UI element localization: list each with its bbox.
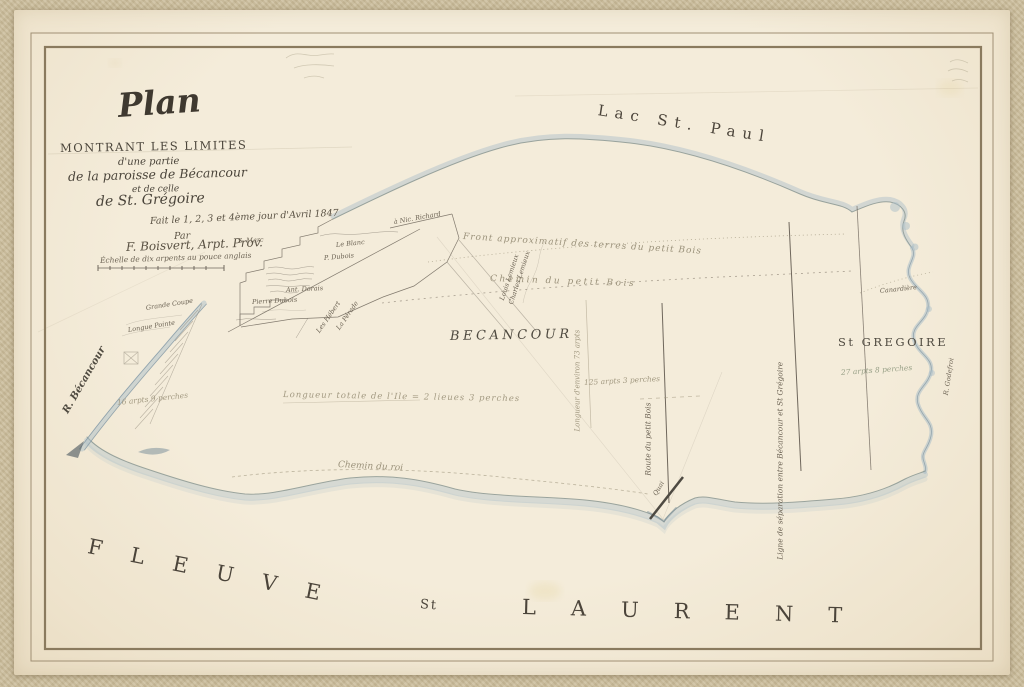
label-lac-st-paul: Lac St. Paul <box>597 103 772 145</box>
label-pierre-dubois: Pierre Dubois <box>252 297 298 306</box>
label-longueur-totale: Longueur totale de l'Ile = 2 lieues 3 pe… <box>283 391 520 404</box>
label-route-petit-bois: Route du petit Bois <box>644 403 652 476</box>
label-p-dubois: P. Dubois <box>324 252 355 261</box>
label-laurent: LAURENT <box>522 597 878 627</box>
label-125-arpents: 125 arpts 3 perches <box>584 375 660 386</box>
label-chemin-du-roi: Chemin du roi <box>338 461 403 473</box>
label-quai: Quai <box>652 480 665 497</box>
map-labels: Lac St. PaulFLEUVEStLAURENTBECANCOURSt G… <box>0 0 1024 687</box>
label-longueur-environ: Longueur d'environ 73 arpts <box>575 330 582 432</box>
survey-map-sheet: Plan MONTRANT LES LIMITES d'une partie d… <box>0 0 1024 687</box>
label-fleuve: FLEUVE <box>86 536 351 610</box>
label-longue-pointe: Longue Pointe <box>127 320 175 334</box>
label-le-blanc: Le Blanc <box>336 239 365 248</box>
label-27-arpents: 27 arpts 8 perches <box>841 364 913 376</box>
label-canardiere: Canardière <box>880 284 918 294</box>
label-ant-dorais: Ant. Dorais <box>286 285 323 293</box>
label-front-approximatif: Front approximatif des terres du petit B… <box>463 233 702 257</box>
label-r-godefroi: R. Godefroi <box>943 358 955 396</box>
label-16-arpents: 16 arpts 9 perches <box>117 392 189 407</box>
label-st: St <box>419 598 438 613</box>
label-region-becancour: BECANCOUR <box>450 328 573 343</box>
label-r-becancour: R. Bécancour <box>62 345 108 415</box>
label-a-nic-richard: à Nic. Richard <box>393 211 441 226</box>
label-s-marc: S. Marc <box>238 237 264 245</box>
label-region-st-gregoire: St GREGOIRE <box>838 337 948 349</box>
label-ligne-separation: Ligne de séparation entre Bécancour et S… <box>776 362 784 560</box>
label-grande-coupe: Grande Coupe <box>145 298 193 312</box>
